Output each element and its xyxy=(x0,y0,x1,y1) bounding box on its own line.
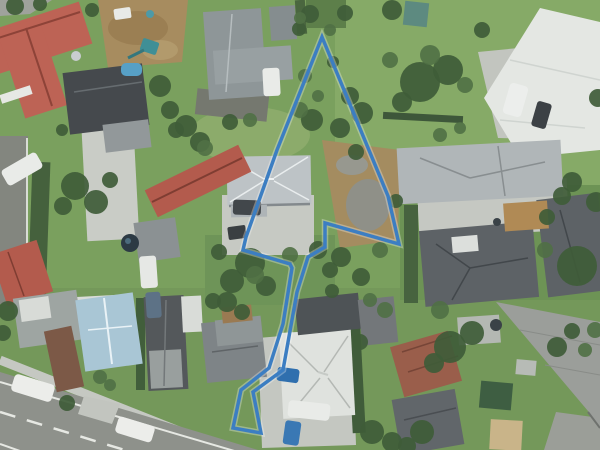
water-tank-highlight xyxy=(125,238,131,244)
van-white-midleft xyxy=(139,255,158,288)
car-blue-bc-2 xyxy=(282,420,301,446)
building-white-bl-edge xyxy=(181,296,203,333)
vent-silver xyxy=(71,51,81,61)
car-white-topcenter xyxy=(262,68,280,97)
building-green-shed xyxy=(479,381,513,411)
building-garage-topcenter xyxy=(269,5,297,41)
item-teal-topleft xyxy=(146,10,154,18)
table-right-2 xyxy=(490,319,502,331)
panel-light-bl xyxy=(149,349,183,389)
patio-white-right xyxy=(451,235,478,253)
satellite-imagery xyxy=(0,0,600,450)
hedge-right-vertical xyxy=(404,205,418,303)
aerial-map-view[interactable] xyxy=(0,0,600,450)
building-dark-right-a xyxy=(419,221,539,307)
building-tan-br xyxy=(489,419,523,450)
building-gray-topcenter-b xyxy=(213,45,293,84)
building-teal-shed xyxy=(403,1,429,27)
panel-white-bottomleft xyxy=(19,296,52,322)
car-blue-midleft xyxy=(145,292,162,319)
trailer-topleft xyxy=(113,7,131,20)
building-garage-bc-a xyxy=(294,293,361,335)
table-right-1 xyxy=(493,218,501,226)
building-gray-shed-midleft xyxy=(133,217,180,262)
pool xyxy=(121,63,142,76)
building-gray-shed-br xyxy=(515,359,536,376)
building-gray-right xyxy=(397,140,564,205)
building-dark-house-topleft-ext xyxy=(102,119,151,152)
